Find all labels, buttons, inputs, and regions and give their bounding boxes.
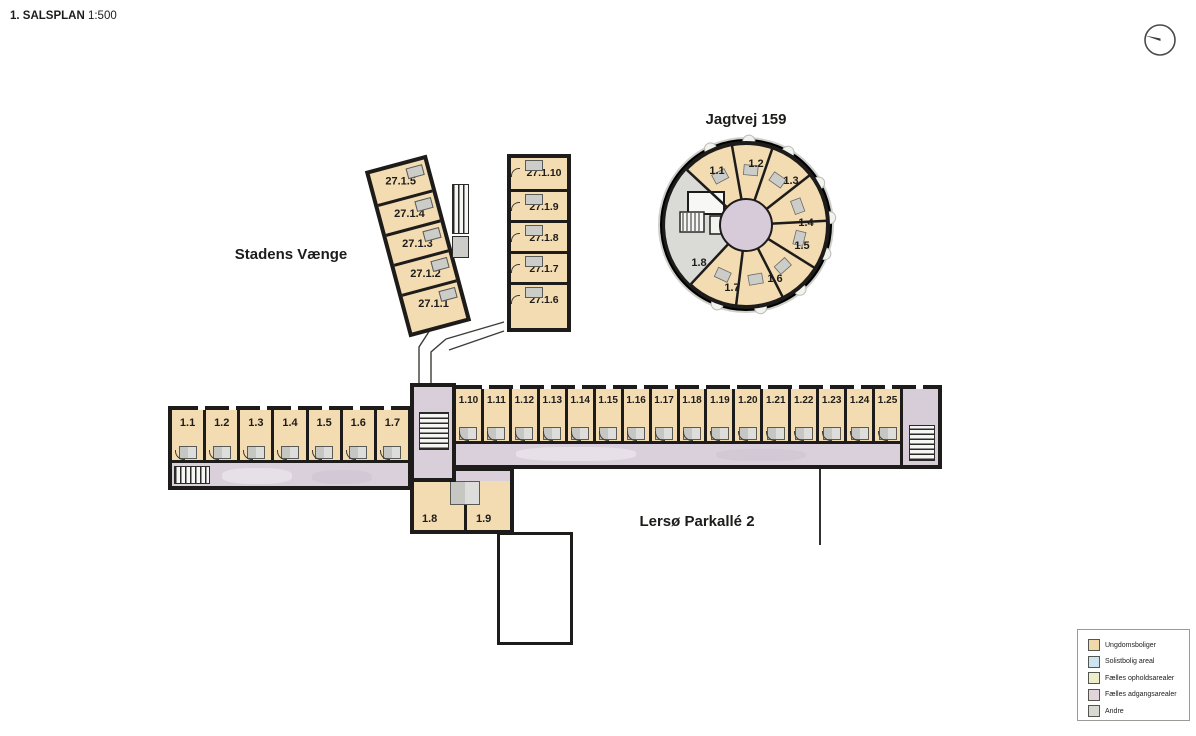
unit-label: 1.15 [596, 395, 621, 406]
courtyard-outline [497, 532, 573, 645]
jagtvej-building: 1.1 1.2 1.3 1.4 1.5 1.6 1.7 1.8 [652, 134, 842, 324]
door-arc [277, 450, 287, 460]
unit-1.20: 1.20 [732, 389, 760, 441]
unit-1.1: 1.1 [172, 410, 203, 460]
legend-item: Fælles opholdsarealer [1088, 672, 1189, 684]
unit-1.18: 1.18 [677, 389, 705, 441]
stadens-annex-building: 27.1.1027.1.927.1.827.1.727.1.6 [507, 154, 571, 332]
unit-1.6: 1.6 [340, 410, 374, 460]
south-wall [464, 505, 467, 530]
unit-label: 1.1 [172, 417, 203, 429]
unit-label: 1.1 [709, 165, 724, 177]
unit-label: 1.14 [568, 395, 593, 406]
unit-27.1.7: 27.1.7 [511, 251, 567, 282]
unit-label: 1.3 [783, 175, 798, 187]
door-arc [511, 202, 520, 211]
unit-1.3: 1.3 [237, 410, 271, 460]
door-arc [511, 233, 520, 242]
south-pod [450, 481, 480, 505]
unit-label: 1.5 [309, 417, 340, 429]
legend-label: Ungdomsboliger [1105, 642, 1156, 649]
unit-1.15: 1.15 [593, 389, 621, 441]
bathroom-pod [525, 225, 543, 236]
unit-label: 1.8 [691, 257, 706, 269]
jagtvej-stair [680, 212, 704, 232]
unit-1.4: 1.4 [271, 410, 305, 460]
unit-label: 1.7 [377, 417, 408, 429]
unit-label: 1.6 [767, 273, 782, 285]
junction-stair [419, 412, 449, 450]
legend-swatch [1088, 639, 1100, 651]
door-arc [511, 168, 520, 177]
unit-1.22: 1.22 [788, 389, 816, 441]
unit-label: 1.19 [707, 395, 732, 406]
legend: UngdomsboligerSolistbolig arealFælles op… [1077, 629, 1190, 721]
unit-label: 1.25 [875, 395, 900, 406]
unit-label: 1.12 [512, 395, 537, 406]
door-arc [511, 295, 520, 304]
corridor-patch [222, 468, 292, 484]
legend-swatch [1088, 672, 1100, 684]
legend-item: Ungdomsboliger [1088, 639, 1189, 651]
unit-1.24: 1.24 [844, 389, 872, 441]
legend-label: Fælles adgangsarealer [1105, 691, 1177, 698]
door-arc [346, 450, 356, 460]
lersoe-west-wing: 1.11.21.31.41.51.61.7 [168, 406, 412, 490]
jagtvej-core [720, 199, 772, 251]
bathroom-pod [525, 256, 543, 267]
lersoe-junction [410, 383, 456, 482]
unit-label: 1.18 [680, 395, 705, 406]
unit-1.5: 1.5 [306, 410, 340, 460]
site-lines [0, 0, 1196, 736]
west-units-row: 1.11.21.31.41.51.61.7 [172, 410, 408, 463]
unit-label: 1.10 [456, 395, 481, 406]
unit-1.12: 1.12 [509, 389, 537, 441]
unit-label: 1.16 [624, 395, 649, 406]
stadens-lift [452, 236, 469, 258]
unit-label: 1.5 [794, 240, 809, 252]
unit-label: 1.8 [422, 513, 437, 525]
unit-label: 1.9 [476, 513, 491, 525]
legend-item: Andre [1088, 705, 1189, 717]
legend-item: Solistbolig areal [1088, 656, 1189, 668]
unit-label: 1.4 [798, 217, 814, 229]
bathroom-pod [525, 194, 543, 205]
east-stair-zone [900, 389, 938, 465]
bathroom-pod [525, 287, 543, 298]
unit-1.7: 1.7 [374, 410, 408, 460]
unit-label: 1.22 [791, 395, 816, 406]
unit-27.1.9: 27.1.9 [511, 189, 567, 220]
bathroom-pod [525, 160, 543, 171]
west-stair [174, 466, 210, 484]
unit-label: 1.7 [724, 282, 739, 294]
unit-1.23: 1.23 [816, 389, 844, 441]
floor-plan-canvas: 1. SALSPLAN 1:500 Jagtvej 159 Stadens Væ… [0, 0, 1196, 736]
door-arc [511, 264, 520, 273]
door-arc [209, 450, 219, 460]
unit-label: 1.2 [206, 417, 237, 429]
unit-label: 1.17 [652, 395, 677, 406]
unit-label: 1.2 [748, 158, 763, 170]
unit-27.1.10: 27.1.10 [511, 158, 567, 189]
unit-label: 1.20 [735, 395, 760, 406]
door-arc [243, 450, 253, 460]
corridor-patch [716, 449, 806, 461]
unit-1.17: 1.17 [649, 389, 677, 441]
unit-label: 1.4 [274, 417, 305, 429]
stadens-midstair [452, 184, 469, 234]
unit-27.1.8: 27.1.8 [511, 220, 567, 251]
corridor-patch [312, 470, 372, 484]
unit-label: 1.23 [819, 395, 844, 406]
door-arc [175, 450, 185, 460]
legend-swatch [1088, 705, 1100, 717]
unit-1.2: 1.2 [203, 410, 237, 460]
unit-1.19: 1.19 [704, 389, 732, 441]
unit-1.16: 1.16 [621, 389, 649, 441]
unit-label: 1.24 [847, 395, 872, 406]
east-units-row: 1.101.111.121.131.141.151.161.171.181.19… [456, 389, 900, 444]
legend-swatch [1088, 689, 1100, 701]
corridor-patch [516, 447, 636, 461]
unit-1.25: 1.25 [872, 389, 900, 441]
legend-label: Fælles opholdsarealer [1105, 675, 1174, 682]
unit-1.14: 1.14 [565, 389, 593, 441]
door-arc [380, 450, 390, 460]
unit-1.10: 1.10 [456, 389, 481, 441]
door-arc [312, 450, 322, 460]
unit-label: 1.6 [343, 417, 374, 429]
unit-1.21: 1.21 [760, 389, 788, 441]
legend-label: Andre [1105, 708, 1124, 715]
east-stair [909, 425, 935, 461]
unit-1.11: 1.11 [481, 389, 509, 441]
unit-label: 1.11 [484, 395, 509, 406]
unit-27.1.6: 27.1.6 [511, 282, 567, 313]
unit-label: 1.3 [240, 417, 271, 429]
lersoe-east-wing: 1.101.111.121.131.141.151.161.171.181.19… [452, 385, 942, 469]
unit-label: 1.21 [763, 395, 788, 406]
unit-label: 1.13 [540, 395, 565, 406]
legend-swatch [1088, 656, 1100, 668]
legend-item: Fælles adgangsarealer [1088, 689, 1189, 701]
legend-label: Solistbolig areal [1105, 658, 1154, 665]
service-room [688, 192, 724, 214]
unit-1.13: 1.13 [537, 389, 565, 441]
